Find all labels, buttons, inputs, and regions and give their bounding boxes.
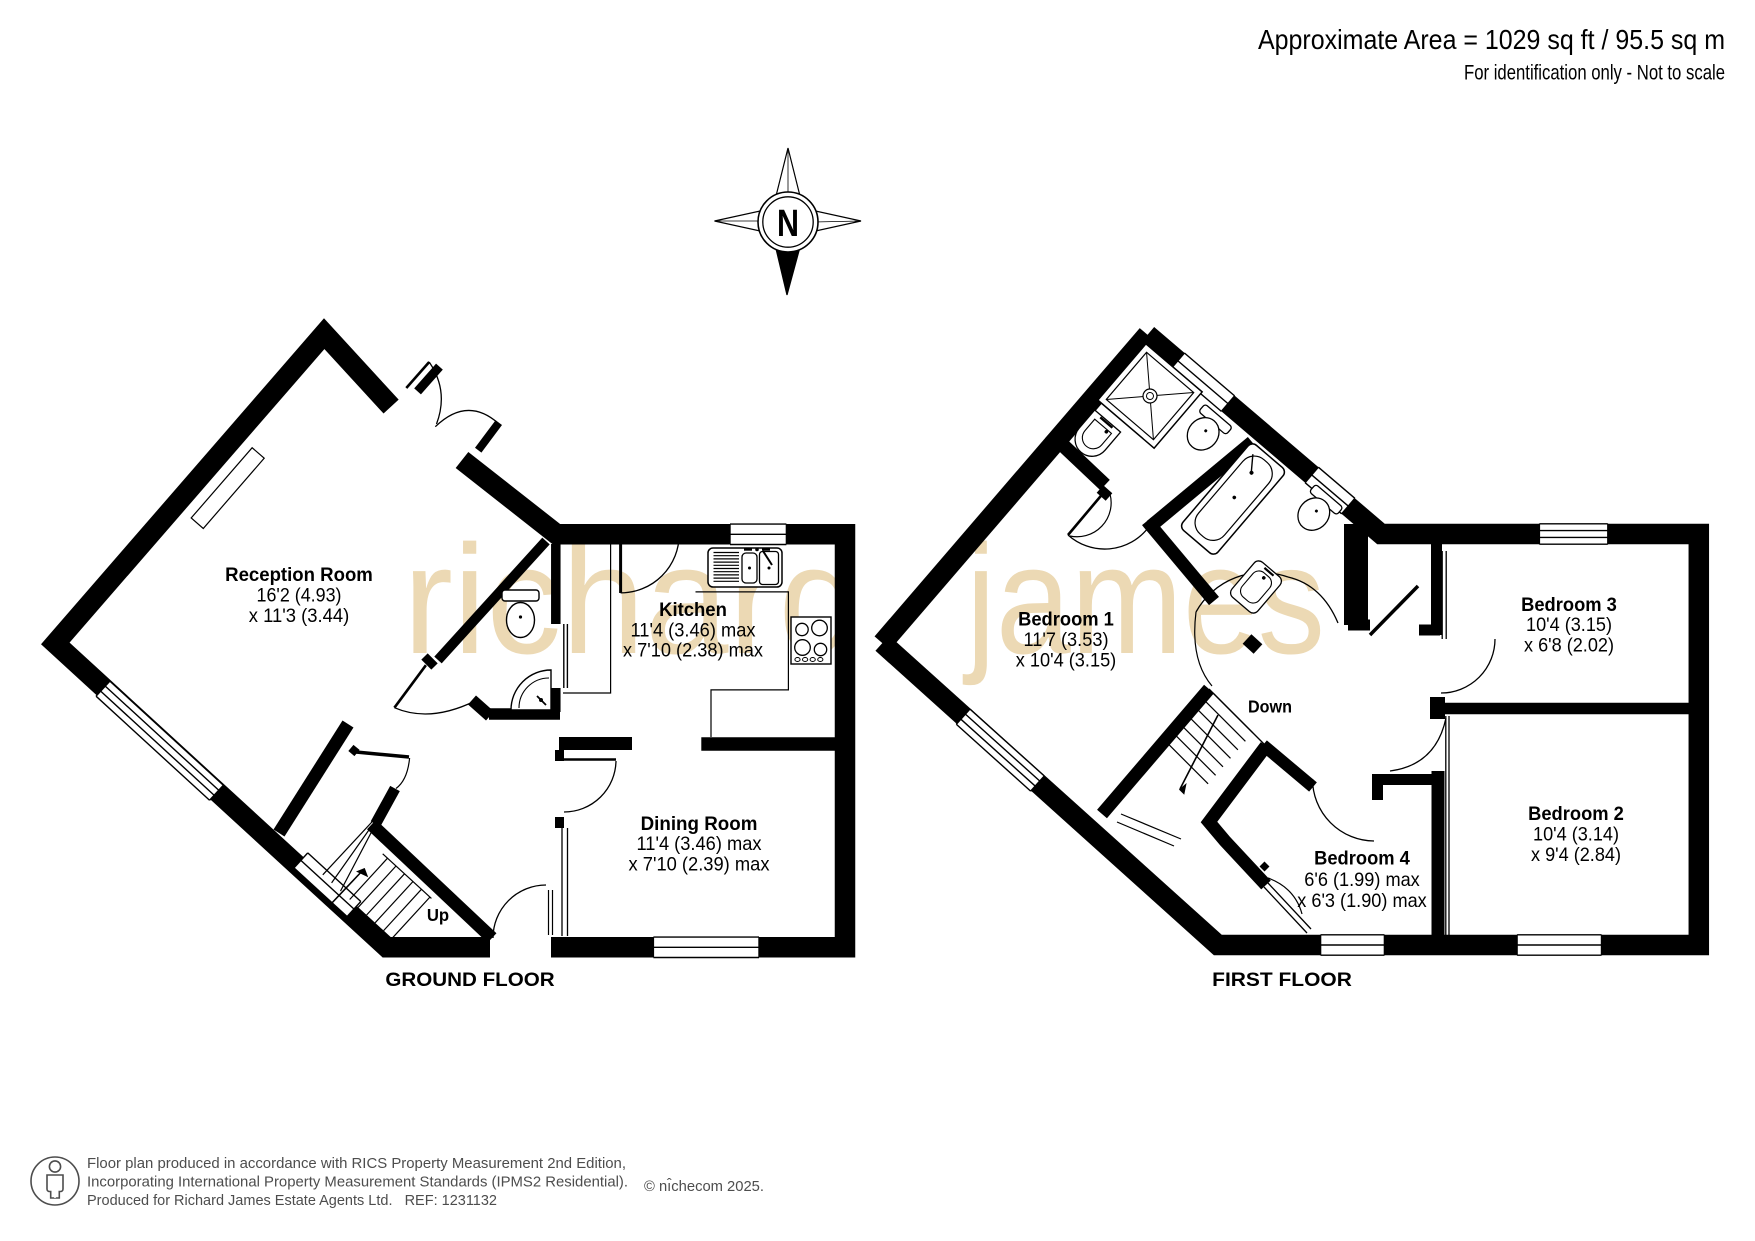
- svg-text:11'7 (3.53): 11'7 (3.53): [1024, 629, 1109, 651]
- svg-text:For identification only - Not: For identification only - Not to scale: [1464, 61, 1725, 85]
- svg-text:Kitchen: Kitchen: [659, 599, 727, 621]
- svg-text:Reception Room: Reception Room: [225, 564, 373, 586]
- svg-text:x 7'10 (2.39) max: x 7'10 (2.39) max: [629, 854, 770, 876]
- svg-text:Bedroom 2: Bedroom 2: [1528, 803, 1624, 825]
- svg-text:N: N: [777, 203, 799, 245]
- svg-text:6'6 (1.99) max: 6'6 (1.99) max: [1304, 869, 1420, 891]
- svg-text:Dining Room: Dining Room: [641, 813, 758, 835]
- svg-text:Bedroom 3: Bedroom 3: [1521, 594, 1617, 616]
- svg-text:© nı̂checom 2025.: © nı̂checom 2025.: [644, 1178, 764, 1195]
- svg-text:Incorporating International Pr: Incorporating International Property Mea…: [87, 1174, 628, 1191]
- svg-text:GROUND FLOOR: GROUND FLOOR: [385, 969, 554, 991]
- svg-text:Bedroom 4: Bedroom 4: [1314, 848, 1410, 870]
- svg-text:Up: Up: [427, 905, 449, 925]
- svg-text:x 11'3 (3.44): x 11'3 (3.44): [249, 605, 350, 627]
- svg-text:Bedroom 1: Bedroom 1: [1018, 609, 1114, 631]
- svg-text:x 9'4 (2.84): x 9'4 (2.84): [1531, 844, 1621, 866]
- svg-text:Down: Down: [1248, 697, 1292, 717]
- svg-text:FIRST FLOOR: FIRST FLOOR: [1212, 969, 1352, 991]
- svg-text:Produced for Richard James Est: Produced for Richard James Estate Agents…: [87, 1192, 497, 1209]
- svg-text:x 7'10 (2.38) max: x 7'10 (2.38) max: [623, 640, 763, 662]
- svg-text:10'4 (3.14): 10'4 (3.14): [1533, 824, 1619, 846]
- svg-text:Approximate Area = 1029 sq ft: Approximate Area = 1029 sq ft / 95.5 sq …: [1258, 24, 1725, 55]
- svg-text:Floor plan produced in accorda: Floor plan produced in accordance with R…: [87, 1155, 626, 1172]
- svg-text:11'4 (3.46) max: 11'4 (3.46) max: [637, 833, 762, 855]
- svg-text:10'4 (3.15): 10'4 (3.15): [1526, 614, 1612, 636]
- svg-text:x 6'3 (1.90) max: x 6'3 (1.90) max: [1297, 890, 1427, 912]
- svg-text:x 10'4 (3.15): x 10'4 (3.15): [1016, 650, 1117, 672]
- svg-text:x 6'8 (2.02): x 6'8 (2.02): [1524, 635, 1614, 657]
- svg-text:11'4 (3.46) max: 11'4 (3.46) max: [631, 620, 756, 642]
- svg-text:16'2 (4.93): 16'2 (4.93): [257, 585, 342, 607]
